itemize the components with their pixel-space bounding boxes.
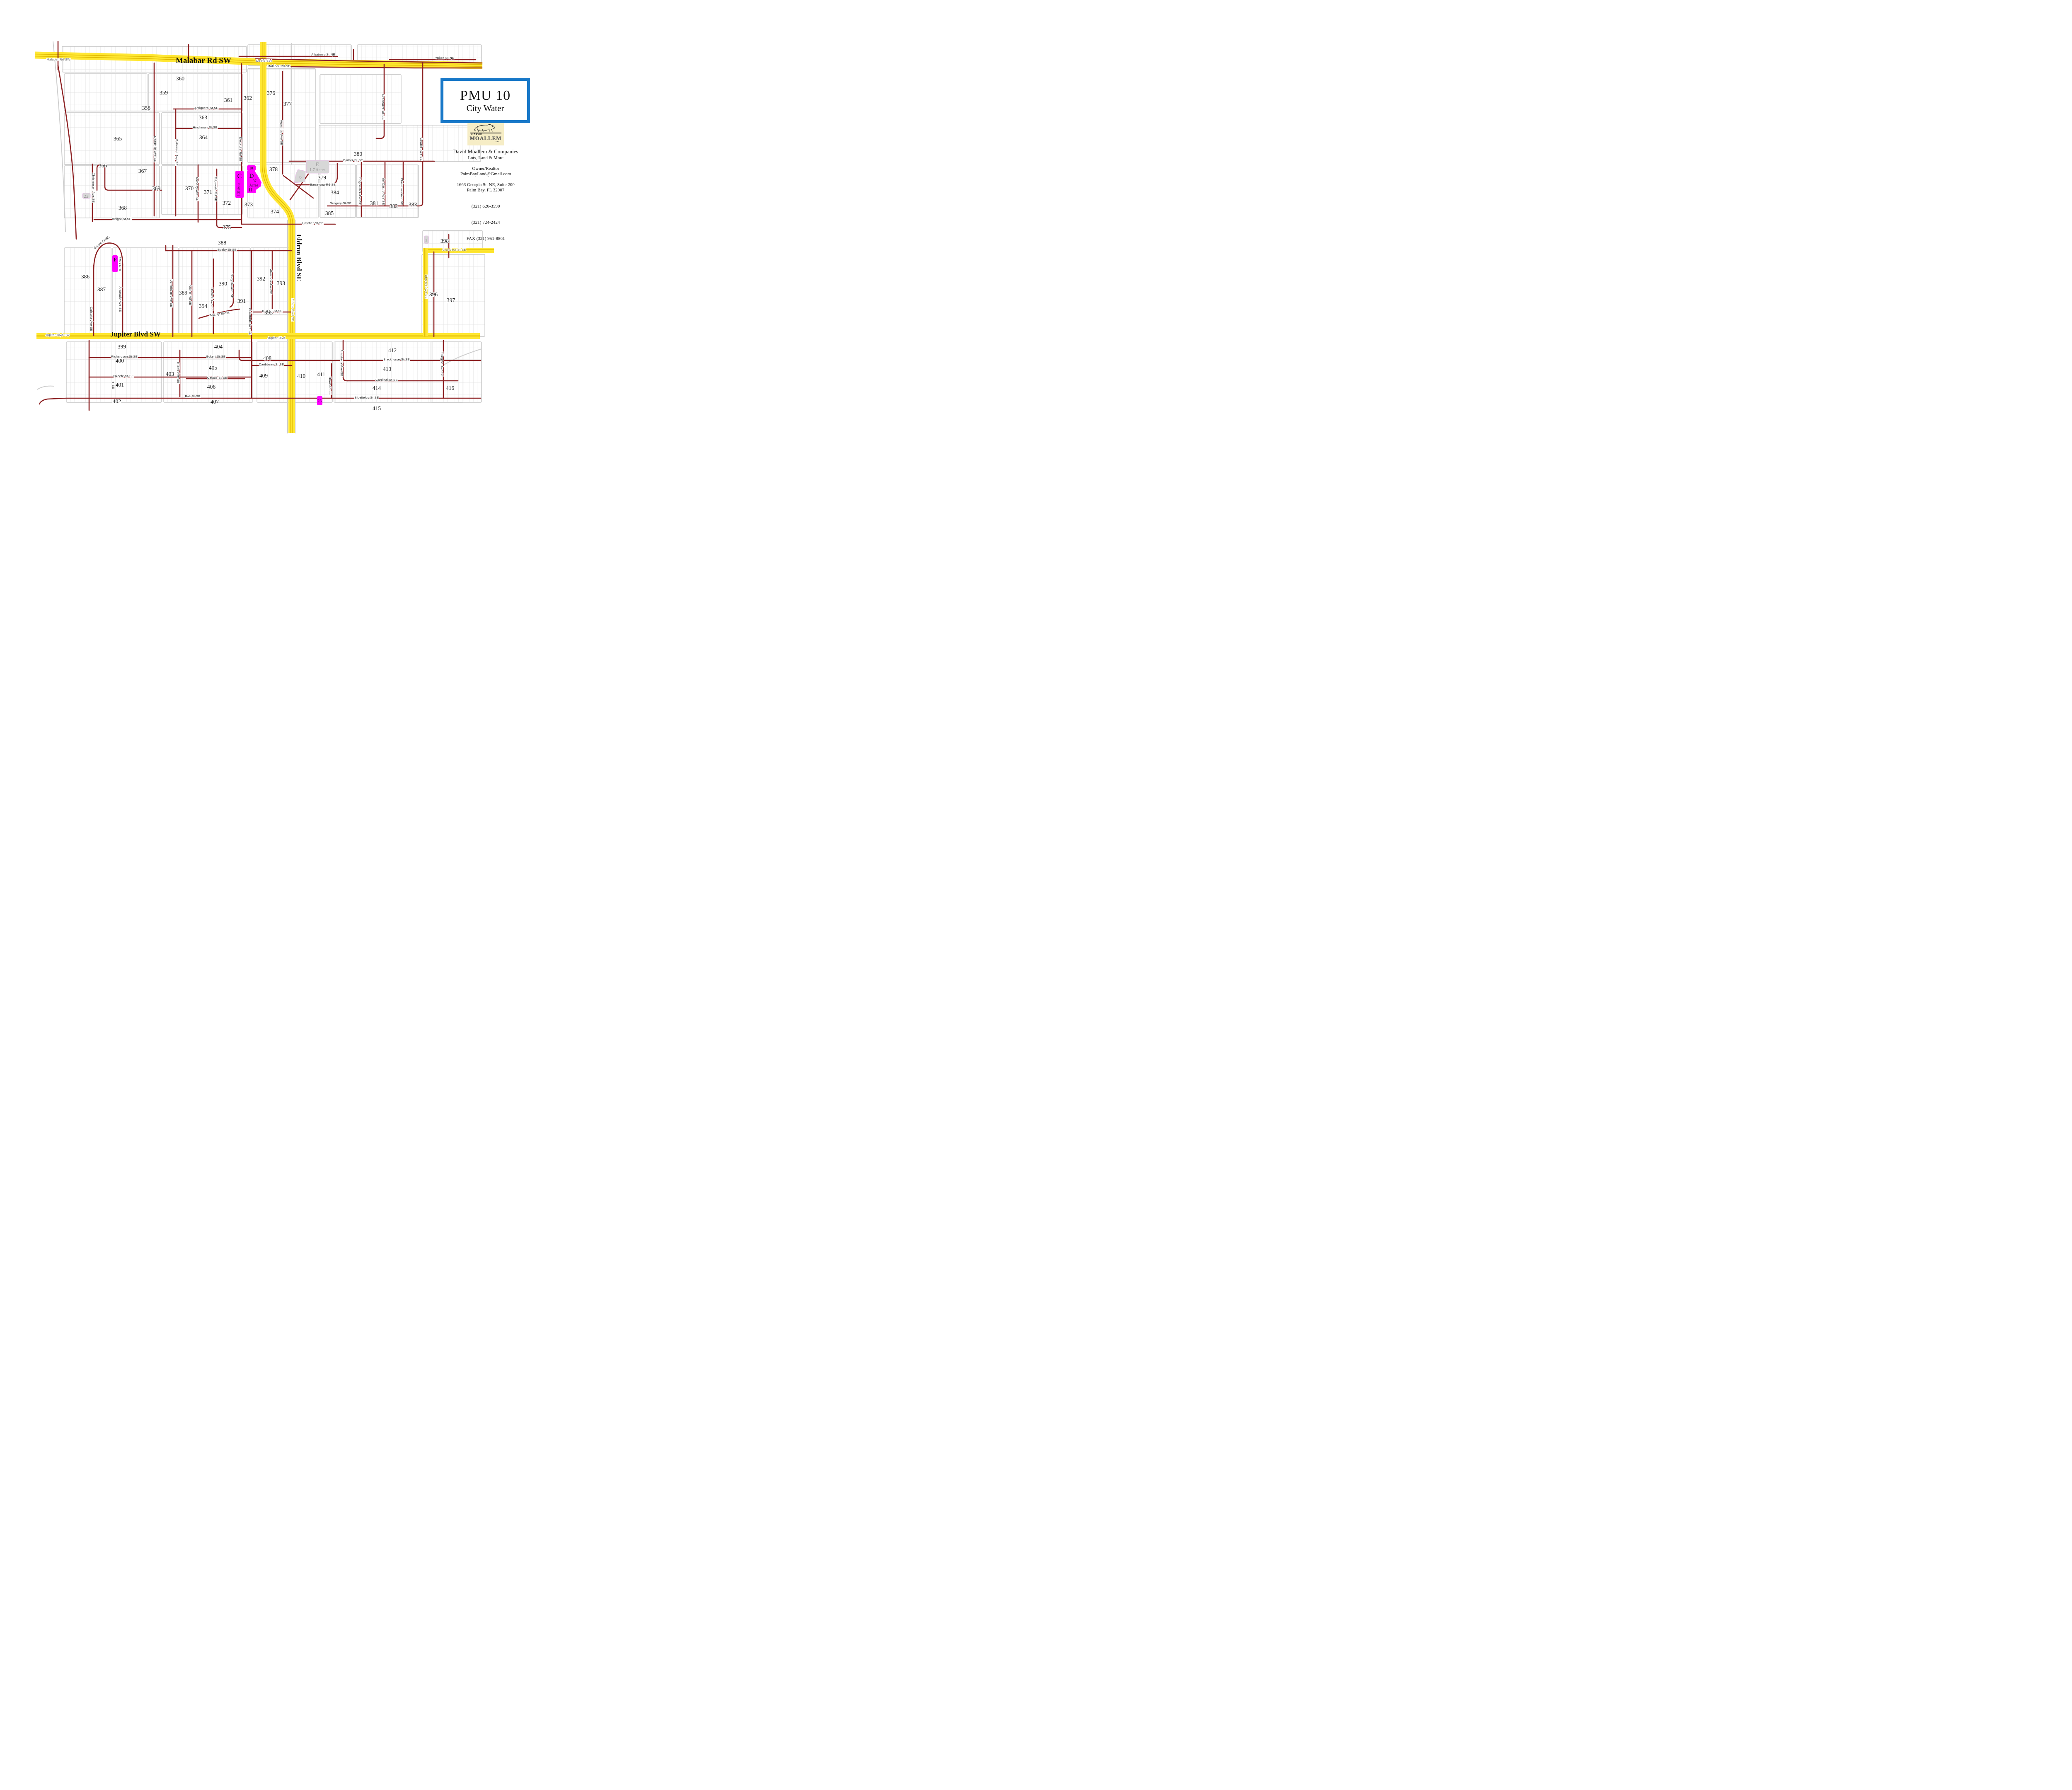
lion-logo-icon	[473, 123, 498, 133]
section-number-384: 384	[331, 189, 339, 196]
section-number-394: 394	[199, 303, 208, 309]
street-label-Deauville-Ave-SE: Deauville·Ave·SE	[153, 136, 157, 162]
section-number-414: 414	[373, 385, 381, 391]
section-number-366: 366	[99, 162, 107, 169]
city-block	[66, 342, 162, 402]
street-label-Howe-St-SE: Howe·St·SE	[328, 377, 332, 395]
section-number-361: 361	[224, 97, 232, 103]
street-label-Bali-St-SE: Bali·St·SE	[185, 394, 200, 398]
street-label-Anastasia-Ave-SE: Anastasia·Ave·SE	[340, 350, 344, 377]
contact-fax: FAX (321) 951-8861	[442, 236, 530, 242]
section-number-405: 405	[209, 365, 218, 371]
street-label-Blackhorse-St-SE: Blackhorse·St·SE	[383, 358, 409, 361]
contact-company: David Moallem & Companies	[442, 148, 530, 155]
city-block	[64, 74, 147, 111]
section-number-378: 378	[269, 166, 278, 172]
street-label-Haskell-Ave-SE: Haskell·Ave·SE	[210, 288, 214, 311]
street-label-Bargello-Ave-SE: Bargello·Ave·SE	[230, 274, 234, 298]
section-number-410: 410	[297, 373, 306, 379]
city-block	[320, 75, 401, 123]
parcel-label-C: 1.21 Acres	[237, 183, 240, 196]
parcel-label-F: F	[114, 256, 116, 263]
street-label-Christensen-Ave-SE: Christensen·Ave·SE	[92, 173, 95, 203]
street-label-Alvarado-Ave-SE: Alvarado·Ave·SE	[119, 286, 122, 312]
parcel-label-C: C	[237, 173, 242, 180]
road-label-Malabar-Rd-SW: Malabar Rd SW	[176, 56, 231, 65]
section-number-399: 399	[118, 343, 126, 350]
street-label-Decordre-Rd-SE: Decordre·Rd·SE	[239, 137, 242, 162]
section-number-376: 376	[267, 90, 276, 96]
section-number-367: 367	[138, 168, 147, 174]
street-label-Calabria-Ave-SE: Calabria·Ave·SE	[90, 307, 93, 331]
section-number-371: 371	[204, 189, 212, 195]
parcel-label-D-H: D	[249, 173, 254, 179]
section-number-362: 362	[244, 95, 252, 101]
section-number-385: 385	[325, 210, 334, 216]
section-number-368: 368	[119, 205, 127, 211]
street-label-e-SE: e·SE	[111, 382, 115, 389]
section-number-395: 395	[264, 310, 273, 316]
section-number-404: 404	[214, 343, 223, 350]
logo-name-text: MOALLEM	[467, 136, 504, 140]
street-label-Albatross-St-NE: Albatross·St·NE	[311, 53, 335, 56]
city-block	[431, 342, 482, 402]
street-label-Barber-St-SE: Barber·St·SE	[343, 158, 363, 162]
contact-phone1: (321) 626-3590	[442, 204, 530, 209]
street-label-el-Dorado-Ave-SE: el·Dorado·Ave·SE	[248, 308, 252, 335]
contact-role: Owner/Realtor	[442, 166, 530, 172]
section-number-369: 369	[152, 185, 161, 191]
section-number-416: 416	[446, 385, 455, 391]
parcel-label-D-H: H	[249, 187, 253, 193]
street-label-Malabar-Rd-SW: Malabar·Rd·SW	[46, 58, 70, 61]
parcel-label-E: 1.7 Acres	[310, 168, 325, 172]
street-label-Edgevale-Rd-SE: Edgevale·Rd·SE	[214, 177, 218, 201]
street-label-Buzby-St-SE: Buzby·St·SE	[218, 248, 237, 252]
street-label-Knight-St-SE: Knight·St·SE	[112, 217, 131, 221]
road-label-Eldron-Blvd-SE: Eldron Blvd SE	[295, 234, 303, 281]
parcel-label-2: 2	[426, 239, 428, 243]
parcel-label-22: 22	[84, 194, 89, 199]
section-number-381: 381	[370, 200, 378, 206]
section-number-375: 375	[223, 224, 231, 230]
street-label-Antiquera-St-SE: Antiquera·St·SE	[194, 106, 218, 110]
city-block	[162, 166, 242, 215]
city-block	[248, 68, 315, 163]
street-label-Okeefe-St-SE: Okeefe·St·SE	[113, 374, 133, 378]
city-block	[64, 113, 160, 164]
street-label-Bluefields-St-SE: Bluefields·St·SE	[355, 396, 379, 399]
section-number-377: 377	[283, 101, 292, 107]
section-number-411: 411	[317, 371, 325, 377]
street-label-Ellington-Ave-SE: Ellington·Ave·SE	[440, 352, 444, 377]
street-label-Dominican-Ave-SE: Dominican·Ave·SE	[169, 279, 173, 307]
parcel-label-10: 10	[249, 166, 254, 170]
section-number-365: 365	[114, 135, 122, 142]
section-number-412: 412	[388, 347, 397, 353]
street-label-Yukon-St-NE: Yukon·St·NE	[435, 56, 454, 60]
street-label-Aquarius-Ave-SE: Aquarius·Ave·SE	[280, 120, 283, 145]
section-number-358: 358	[142, 105, 151, 111]
street-label-Archer-Rd-SE: Archer·Rd·SE	[189, 285, 192, 305]
section-number-379: 379	[318, 174, 327, 181]
section-number-373: 373	[244, 201, 253, 208]
section-number-387: 387	[97, 286, 106, 293]
map-subtitle: City Water	[467, 103, 504, 113]
map-title-box: PMU 10 City Water	[441, 78, 530, 123]
section-number-415: 415	[373, 405, 381, 411]
company-logo: M DAVID MOALLEM INC	[467, 123, 504, 145]
section-number-389: 389	[179, 290, 188, 296]
street-label-Cardinal-St-SE: Cardinal·St·SE	[375, 378, 397, 382]
parcel-label-D-H: 1.37	[250, 179, 257, 183]
section-number-359: 359	[160, 89, 168, 96]
street-label-Brevard-Ave-SE: Brevard·Ave·SE	[424, 275, 428, 299]
street-label-Anthony-Ave-SE: Anthony·Ave·SE	[195, 177, 199, 201]
contact-email: PalmBayLand@Gmail.com	[442, 172, 530, 177]
street-label-Eldron-Blvd-SE: Eldron·Blvd·SE	[291, 299, 295, 322]
section-number-390: 390	[219, 281, 228, 287]
contact-block: David Moallem & Companies Lots, Land & M…	[442, 148, 530, 242]
section-number-386: 386	[81, 273, 90, 280]
street-label-el-Sito-Ave-SE: el·Sito·Ave·SE	[177, 362, 180, 383]
section-number-383: 383	[409, 201, 417, 208]
section-number-397: 397	[447, 297, 455, 303]
street-label-Gregory-St-SE: Gregory·St·SE	[330, 201, 351, 205]
street-gray	[37, 386, 54, 389]
section-number-388: 388	[218, 239, 227, 246]
parcel-label-F: 0.59 Acres	[118, 257, 122, 271]
section-number-407: 407	[211, 399, 219, 405]
parcel-label-6: 6	[299, 175, 302, 180]
section-number-408: 408	[263, 355, 272, 361]
street-label-Greenacre-Dr-SE: Greenacre·Dr·SE	[381, 94, 385, 120]
section-number-370: 370	[185, 185, 194, 191]
street-label-Alameda-Ave-SE: Alameda·Ave·SE	[269, 269, 273, 295]
street-label-Richardson-St-SE: Richardson·St·SE	[111, 355, 138, 358]
section-number-393: 393	[277, 280, 286, 286]
street-label-Caribbean-St-SE: Caribbean·St·SE	[259, 363, 284, 366]
street-label-Battersea-Ave-SE: Battersea·Ave·SE	[175, 139, 179, 166]
section-number-374: 374	[271, 208, 279, 215]
section-number-406: 406	[207, 384, 216, 390]
city-block	[356, 165, 419, 218]
street-label-Eckert-St-SE: Eckert·St·SE	[206, 355, 225, 358]
street-label-Hatcher-St-SE: Hatcher·St·SE	[302, 221, 324, 225]
section-number-392: 392	[257, 276, 265, 282]
street-label-Jupiter-Blvd: Jupiter·Blvd	[268, 336, 286, 340]
section-number-391: 391	[237, 298, 246, 304]
contact-address1: 1663 Georgia St. NE, Suite 200	[442, 182, 530, 188]
street-label-Edgewater-Ave-SE: Edgewater·Ave·SE	[358, 177, 362, 206]
contact-tagline: Lots, Land & More	[442, 155, 530, 161]
section-number-364: 364	[199, 134, 208, 140]
section-number-396: 396	[429, 291, 438, 298]
street-label-Jupiter-Blvd-SW: Jupiter·Blvd·SW	[46, 333, 70, 337]
street-label-Barcelona-Rd-SE: Barcelona·Rd·SE	[310, 183, 336, 186]
section-number-363: 363	[199, 114, 208, 121]
street-label-de-Castro-Ave-SE: de·Castro·Ave·SE	[382, 178, 385, 205]
pmu10-map-sheet: C1.21 Acres10D1.37AcresHE1.7 Acres6222F0…	[0, 0, 597, 447]
parcel-label-E: E	[316, 161, 319, 167]
section-number-380: 380	[354, 151, 363, 157]
section-number-413: 413	[383, 366, 392, 372]
street-label-Cownie-Ave-SE: Cownie·Ave·SE	[419, 138, 423, 161]
section-number-409: 409	[259, 373, 268, 379]
street-label-Christmas-Ave-SE: Christmas·Ave·SE	[400, 178, 404, 205]
contact-phone2: (321) 724-2424	[442, 220, 530, 225]
parcel-label-23: 23	[317, 399, 322, 404]
section-number-382: 382	[390, 203, 398, 209]
street-label-Cactus-St-SE: Cactus·St·SE	[207, 376, 227, 380]
map-title: PMU 10	[460, 88, 511, 103]
street-label-Co-Rd-514: Co·Rd·514	[256, 59, 272, 63]
section-number-400: 400	[116, 358, 124, 364]
road-label-Jupiter-Blvd-SW: Jupiter Blvd SW	[110, 330, 161, 338]
contact-address2: Palm Bay, FL 32907	[442, 188, 530, 193]
section-number-360: 360	[176, 75, 185, 82]
section-number-403: 403	[166, 371, 174, 377]
street-label-Hinchman-St-SE: Hinchman·St·SE	[193, 126, 217, 129]
street-label-Malabar-Rd-SE: Malabar·Rd·SE	[268, 64, 290, 68]
section-number-401: 401	[116, 382, 124, 388]
section-number-402: 402	[113, 398, 121, 404]
section-number-372: 372	[223, 200, 231, 206]
street-label-Grandeur-St-SE: Grandeur·St·SE	[442, 248, 466, 252]
